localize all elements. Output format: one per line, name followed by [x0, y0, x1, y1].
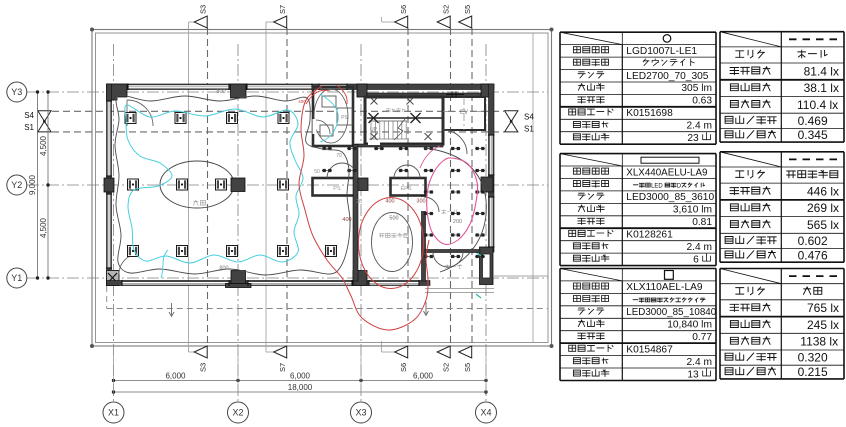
svg-text:X2: X2 — [232, 408, 243, 418]
svg-text:565 lx: 565 lx — [807, 218, 839, 232]
svg-text:18,000: 18,000 — [288, 383, 313, 392]
svg-text:6,000: 6,000 — [413, 372, 434, 381]
svg-text:800: 800 — [216, 89, 225, 95]
svg-text:38.1 lx: 38.1 lx — [804, 81, 839, 95]
svg-text:S6: S6 — [399, 363, 408, 372]
svg-text:3,610 lm: 3,610 lm — [673, 205, 712, 216]
svg-text:6: 6 — [693, 254, 699, 265]
svg-text:K0154867: K0154867 — [626, 344, 673, 355]
svg-text:K0128261: K0128261 — [626, 230, 673, 241]
svg-text:23: 23 — [687, 133, 699, 144]
svg-text:LGD1007L-LE1: LGD1007L-LE1 — [626, 46, 697, 57]
svg-text:XLX110AEL-LA9: XLX110AEL-LA9 — [626, 282, 703, 293]
svg-text:EV: EV — [460, 110, 468, 116]
svg-text:S3: S3 — [199, 5, 208, 14]
svg-text:X3: X3 — [355, 408, 366, 418]
svg-text:EPS: EPS — [401, 186, 412, 192]
svg-text:0.469: 0.469 — [798, 114, 828, 128]
svg-text:Y3: Y3 — [11, 87, 22, 97]
svg-text:S5: S5 — [463, 363, 472, 372]
svg-text:X1: X1 — [108, 408, 119, 418]
svg-text:LED3000_85_3610: LED3000_85_3610 — [626, 192, 714, 203]
svg-text:0.77: 0.77 — [692, 332, 712, 343]
svg-text:S1: S1 — [24, 123, 34, 132]
svg-text:6,000: 6,000 — [290, 372, 311, 381]
svg-text:UP: UP — [370, 127, 378, 133]
svg-text:9,000: 9,000 — [28, 174, 37, 195]
svg-text:K0151698: K0151698 — [626, 108, 673, 119]
svg-text:400: 400 — [342, 217, 351, 223]
svg-text:13: 13 — [687, 369, 699, 380]
svg-text:LED: LED — [651, 184, 663, 190]
svg-text:S1: S1 — [524, 125, 534, 134]
svg-text:S6: S6 — [399, 5, 408, 14]
svg-text:S3: S3 — [199, 363, 208, 372]
svg-text:S2: S2 — [442, 5, 451, 14]
svg-text:6,000: 6,000 — [165, 372, 186, 381]
svg-text:400: 400 — [298, 99, 306, 104]
svg-text:50: 50 — [314, 169, 320, 175]
svg-text:765 lx: 765 lx — [807, 301, 839, 315]
svg-text:446 lx: 446 lx — [807, 185, 839, 199]
svg-text:400: 400 — [385, 199, 394, 205]
svg-text:S7: S7 — [278, 363, 287, 372]
svg-text:200: 200 — [453, 219, 462, 225]
svg-text:2.4 m: 2.4 m — [687, 121, 712, 132]
svg-text:S4: S4 — [524, 113, 534, 122]
svg-text:D: D — [677, 184, 682, 190]
svg-text:300: 300 — [416, 199, 425, 205]
svg-text:S7: S7 — [278, 5, 287, 14]
svg-text:305 lm: 305 lm — [681, 83, 712, 94]
svg-text:81.4 lx: 81.4 lx — [804, 64, 839, 78]
svg-text:PS: PS — [333, 186, 341, 192]
svg-text:245 lx: 245 lx — [807, 318, 839, 332]
svg-text:1138 lx: 1138 lx — [800, 335, 838, 349]
svg-text:S5: S5 — [463, 5, 472, 14]
svg-text:2.4 m: 2.4 m — [687, 357, 712, 368]
svg-text:0.215: 0.215 — [798, 365, 828, 379]
svg-text:269 lx: 269 lx — [807, 201, 839, 215]
svg-text:X4: X4 — [480, 408, 491, 418]
svg-text:Y2: Y2 — [11, 180, 22, 190]
svg-text:70: 70 — [336, 153, 342, 159]
svg-text:LED3000_85_10840: LED3000_85_10840 — [626, 307, 716, 318]
svg-text:4,500: 4,500 — [39, 135, 48, 156]
svg-text:800: 800 — [219, 266, 228, 272]
svg-text:0.602: 0.602 — [798, 234, 828, 248]
svg-text:20: 20 — [356, 199, 362, 205]
svg-text:S4: S4 — [24, 111, 34, 120]
svg-text:Y1: Y1 — [11, 273, 22, 283]
svg-text:XLX440AELU-LA9: XLX440AELU-LA9 — [626, 167, 707, 178]
svg-text:4,500: 4,500 — [39, 217, 48, 238]
svg-text:10,840 lm: 10,840 lm — [667, 320, 712, 331]
svg-text:0.63: 0.63 — [692, 96, 712, 107]
svg-text:LED2700_70_305: LED2700_70_305 — [626, 71, 708, 82]
svg-text:0.345: 0.345 — [798, 128, 828, 142]
svg-text:110.4 lx: 110.4 lx — [797, 98, 838, 112]
svg-text:0.476: 0.476 — [798, 248, 828, 262]
svg-text:500: 500 — [389, 216, 398, 222]
svg-text:0.320: 0.320 — [798, 351, 828, 365]
svg-text:2.4 m: 2.4 m — [687, 242, 712, 253]
svg-text:S2: S2 — [442, 363, 451, 372]
svg-text:0.81: 0.81 — [692, 217, 712, 228]
